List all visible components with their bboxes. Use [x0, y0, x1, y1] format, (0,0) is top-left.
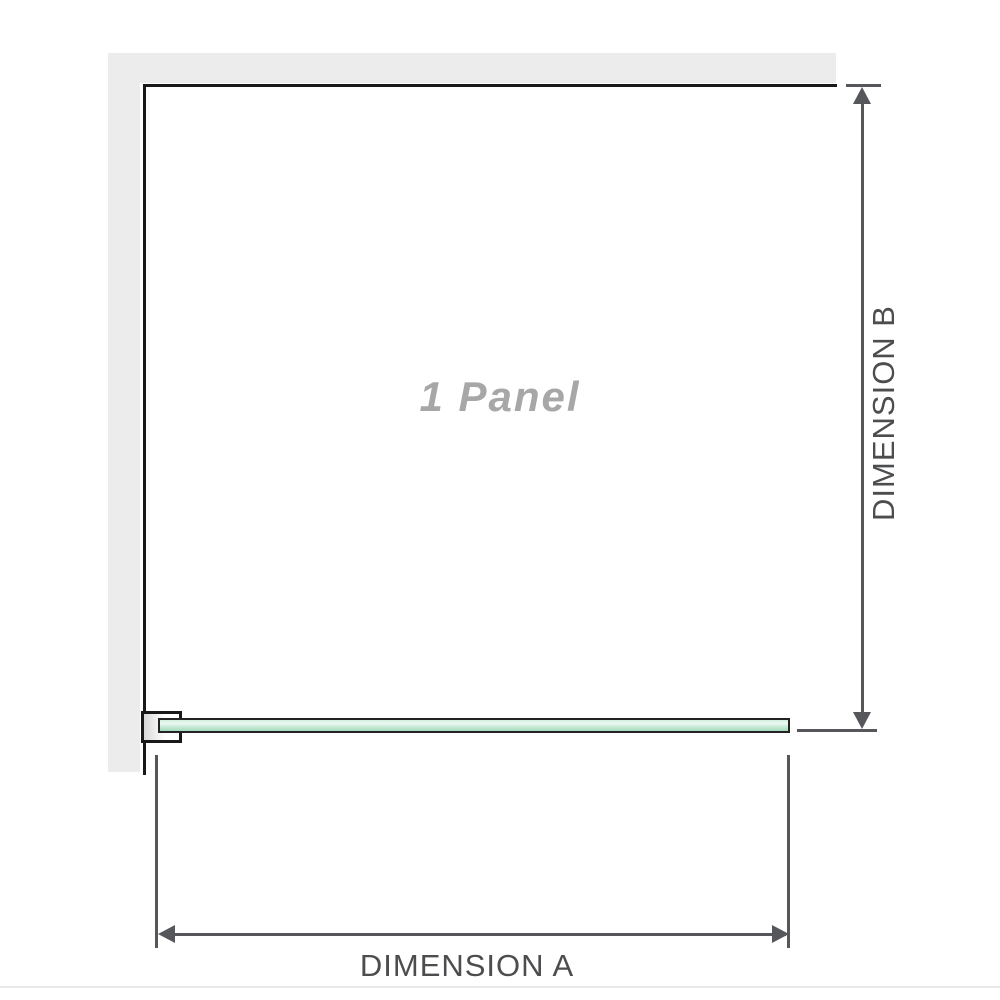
dimension-b-label: DIMENSION B — [866, 305, 902, 521]
dimension-a-left-extension — [155, 755, 158, 948]
wall-top — [108, 53, 836, 83]
dimension-a-line — [162, 933, 786, 936]
wall-left — [108, 53, 140, 772]
panel-count-label: 1 Panel — [419, 373, 580, 421]
panel-left-edge — [143, 84, 146, 775]
dimension-a-right-extension — [787, 755, 790, 948]
bottom-separator — [0, 986, 1000, 988]
dimension-a-label: DIMENSION A — [360, 948, 574, 984]
dimension-b-line — [861, 95, 864, 720]
panel-top-edge — [143, 84, 837, 87]
arrow-down-icon — [853, 712, 871, 729]
glass-panel-bar — [158, 718, 790, 733]
dimension-b-bottom-tick — [797, 729, 877, 732]
arrow-left-icon — [158, 925, 175, 943]
panel-dimension-diagram: 1 Panel DIMENSION B DIMENSION A — [0, 0, 1000, 1000]
arrow-up-icon — [853, 87, 871, 104]
arrow-right-icon — [772, 925, 789, 943]
